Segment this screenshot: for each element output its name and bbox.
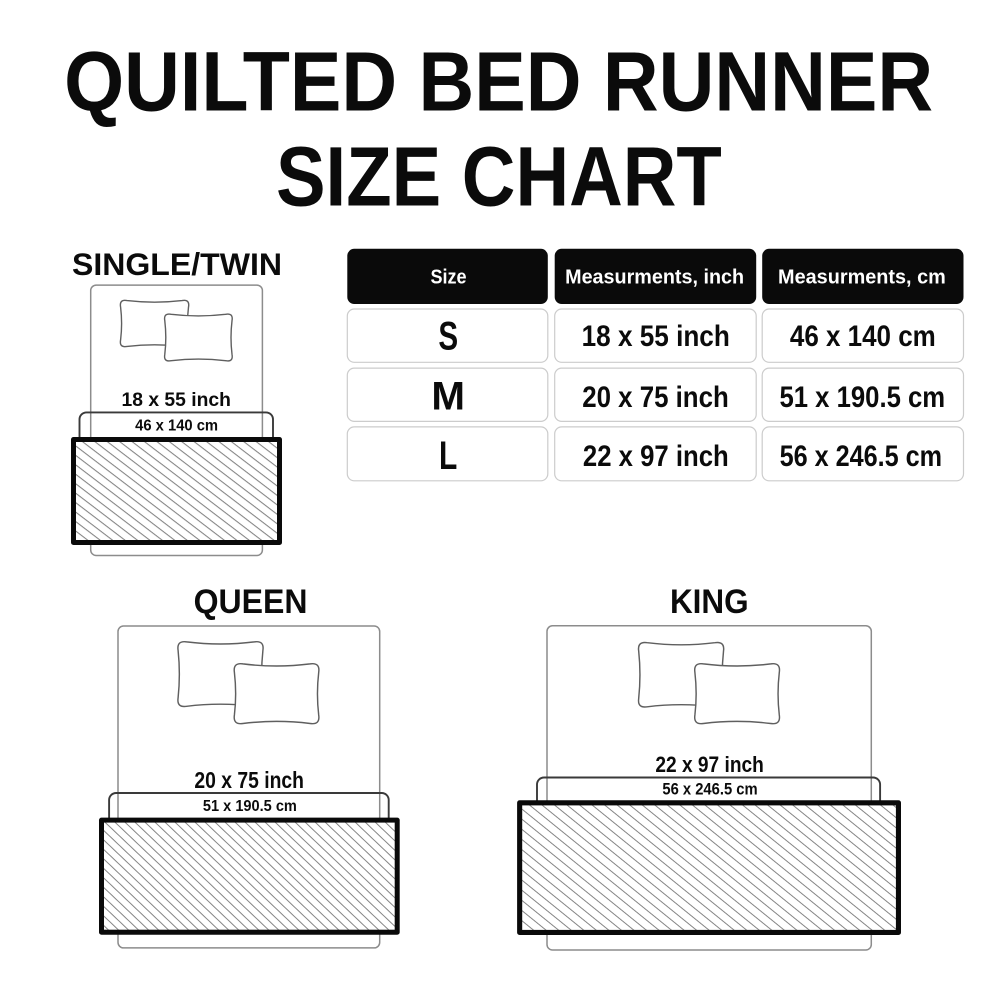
svg-text:S: S [438,315,458,359]
svg-text:Measurments, inch: Measurments, inch [565,266,744,288]
svg-text:46 x 140 cm: 46 x 140 cm [790,320,936,353]
svg-text:20 x 75 inch: 20 x 75 inch [582,380,729,413]
svg-text:QUILTED BED RUNNER: QUILTED BED RUNNER [64,36,933,130]
svg-text:20 x 75 inch: 20 x 75 inch [194,767,304,793]
svg-text:51 x 190.5 cm: 51 x 190.5 cm [779,380,945,413]
svg-text:18 x 55 inch: 18 x 55 inch [122,390,231,411]
svg-text:SINGLE/TWIN: SINGLE/TWIN [72,246,282,282]
svg-text:56 x 246.5 cm: 56 x 246.5 cm [662,781,757,799]
svg-text:51 x 190.5 cm: 51 x 190.5 cm [203,798,297,815]
svg-text:Size: Size [430,267,466,289]
svg-text:QUEEN: QUEEN [194,583,308,621]
svg-text:SIZE CHART: SIZE CHART [276,129,722,223]
svg-text:L: L [439,434,457,478]
svg-text:46 x 140 cm: 46 x 140 cm [135,417,218,435]
svg-text:56 x 246.5 cm: 56 x 246.5 cm [780,439,942,472]
svg-text:18 x 55 inch: 18 x 55 inch [582,320,730,353]
svg-text:22 x 97 inch: 22 x 97 inch [583,439,729,472]
svg-text:Measurments, cm: Measurments, cm [778,266,946,288]
svg-text:22 x 97 inch: 22 x 97 inch [655,753,763,778]
svg-text:KING: KING [670,582,749,620]
svg-text:M: M [431,375,465,419]
